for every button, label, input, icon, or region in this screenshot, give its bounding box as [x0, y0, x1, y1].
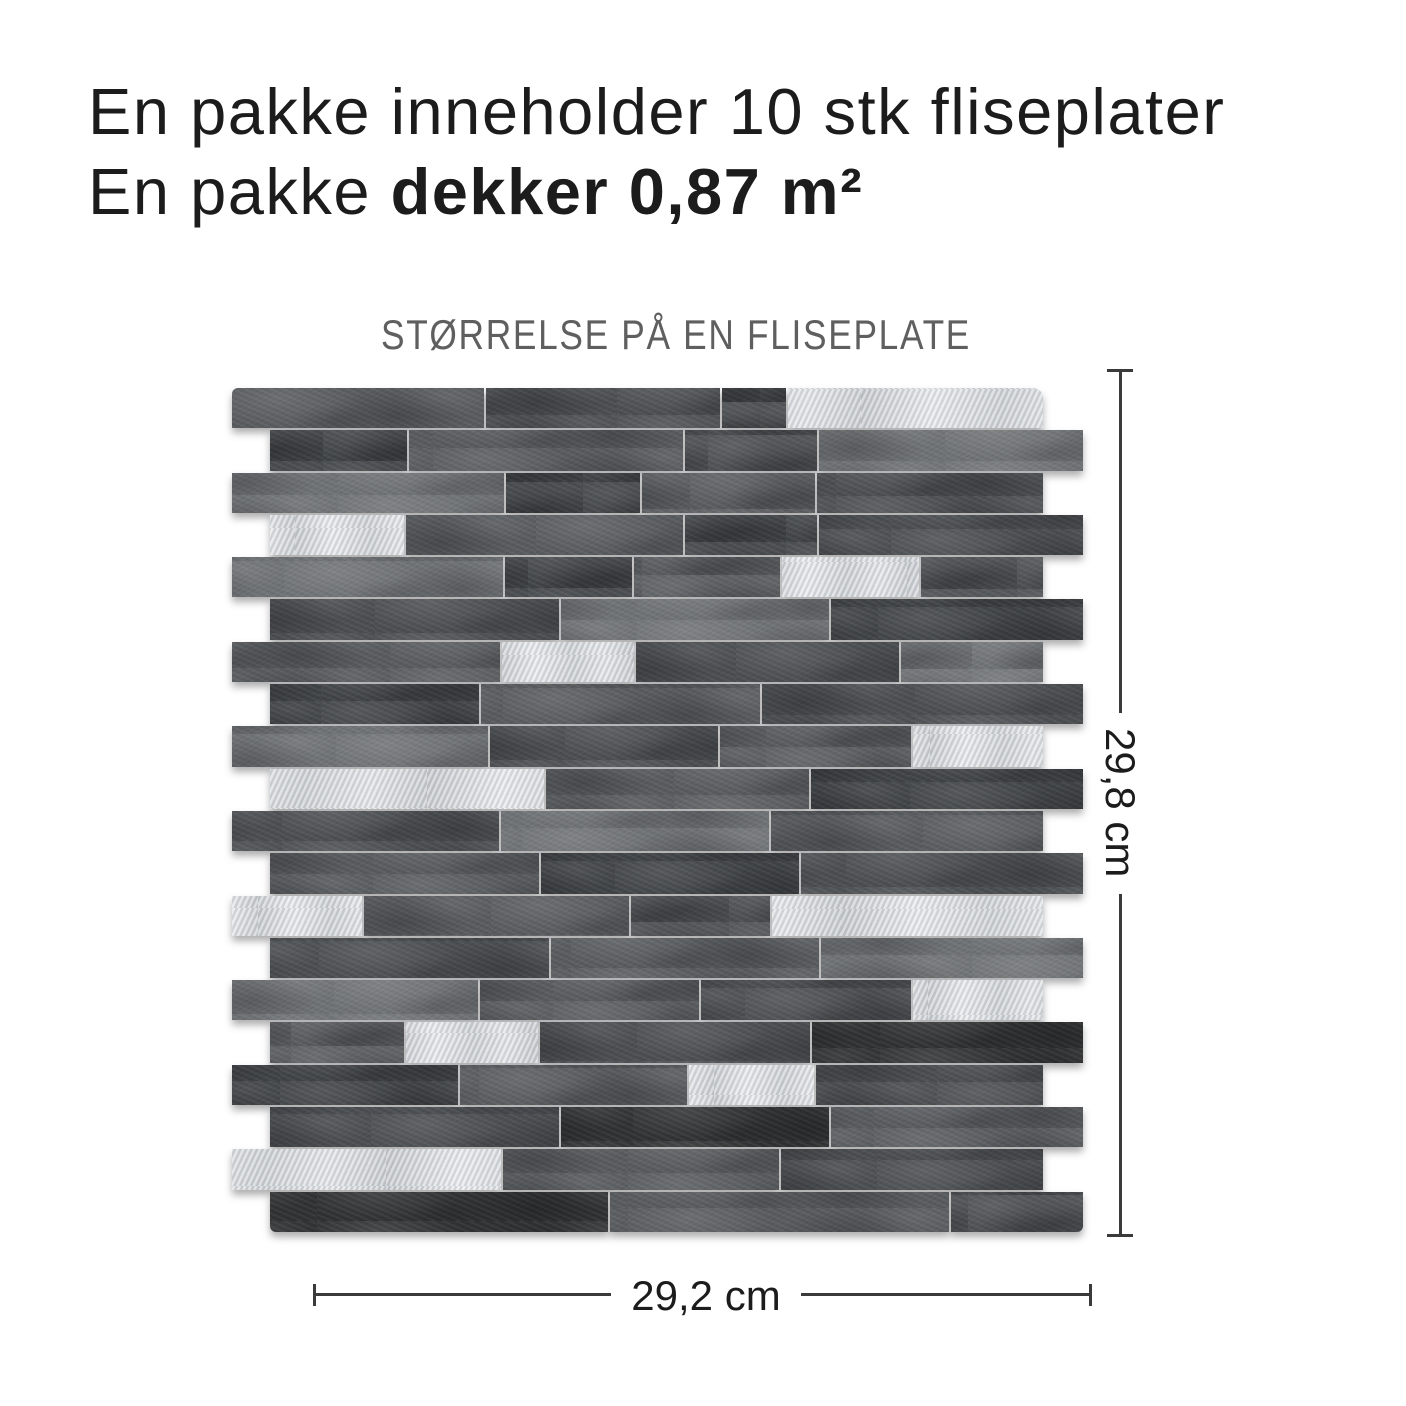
stone-brick [501, 811, 770, 851]
stone-brick [546, 769, 810, 809]
headline-line2-regular: En pakke [88, 155, 391, 228]
tile-row [232, 473, 1043, 513]
stone-brick [270, 684, 479, 724]
tile-row [232, 980, 1043, 1020]
stone-brick [364, 896, 629, 936]
metal-brick [270, 515, 404, 555]
stone-brick [561, 599, 830, 639]
stone-brick [551, 938, 820, 978]
tile-row [270, 769, 1083, 809]
stone-brick [270, 938, 549, 978]
stone-brick [781, 1149, 1043, 1189]
stone-brick [232, 473, 504, 513]
tile-row [270, 430, 1083, 470]
stone-brick [921, 557, 1043, 597]
stone-brick [480, 980, 698, 1020]
metal-brick [270, 769, 544, 809]
tile-row [270, 1022, 1083, 1062]
stone-brick [232, 1065, 458, 1105]
stone-brick [801, 853, 1083, 893]
stone-brick [460, 1065, 686, 1105]
stone-brick [406, 515, 683, 555]
tile-row [232, 642, 1043, 682]
stone-brick [811, 769, 1083, 809]
tile-row [270, 684, 1083, 724]
stone-brick [506, 473, 640, 513]
stone-brick [232, 388, 484, 428]
stone-brick [817, 473, 1043, 513]
headline: En pakke inneholder 10 stk fliseplater E… [88, 72, 1225, 232]
metal-brick [913, 726, 1043, 766]
stone-brick [490, 726, 718, 766]
stone-brick [819, 515, 1083, 555]
size-caption: STØRRELSE PÅ EN FLISEPLATE [381, 312, 971, 358]
width-dimension-right-tick [1089, 1284, 1092, 1306]
stone-brick [561, 1107, 830, 1147]
tile-row [270, 515, 1083, 555]
stone-brick [951, 1192, 1083, 1232]
metal-brick [232, 896, 362, 936]
stone-brick [701, 980, 911, 1020]
tile-row [270, 1192, 1083, 1232]
height-dimension-line-lower [1119, 894, 1122, 1236]
stone-brick [481, 684, 760, 724]
stone-brick [270, 1192, 608, 1232]
headline-line2: En pakke dekker 0,87 m² [88, 152, 1225, 232]
stone-brick [821, 938, 1083, 978]
metal-brick [232, 1149, 501, 1189]
stone-brick [831, 599, 1083, 639]
metal-brick [689, 1065, 814, 1105]
tile-row [270, 853, 1083, 893]
stone-brick [505, 557, 632, 597]
stone-brick [812, 1022, 1083, 1062]
stone-brick [232, 726, 488, 766]
tile-row [232, 1065, 1043, 1105]
metal-brick [913, 980, 1043, 1020]
stone-brick [816, 1065, 1043, 1105]
height-dimension-line-upper [1119, 369, 1122, 713]
product-infographic: En pakke inneholder 10 stk fliseplater E… [0, 0, 1406, 1406]
height-dimension-label: 29,8 cm [1092, 712, 1148, 894]
stone-brick [270, 1022, 404, 1062]
tile-row [232, 557, 1043, 597]
height-dimension-bottom-tick [1107, 1234, 1133, 1237]
stone-brick [819, 430, 1083, 470]
stone-brick [270, 430, 407, 470]
metal-brick [502, 642, 634, 682]
stone-brick [720, 726, 911, 766]
stone-brick [540, 1022, 810, 1062]
stone-brick [771, 811, 1043, 851]
stone-brick [503, 1149, 780, 1189]
width-dimension-line-left [313, 1293, 611, 1296]
stone-brick [232, 642, 500, 682]
stone-brick [685, 430, 817, 470]
stone-brick [762, 684, 1083, 724]
stone-brick [270, 1107, 559, 1147]
stone-brick [486, 388, 720, 428]
width-dimension-line-right [801, 1293, 1091, 1296]
stone-brick [232, 980, 478, 1020]
tile-row [232, 896, 1043, 936]
stone-brick [642, 473, 815, 513]
stone-brick [901, 642, 1043, 682]
metal-brick [406, 1022, 538, 1062]
metal-brick [772, 896, 1043, 936]
tile-row [232, 388, 1043, 428]
stone-brick [831, 1107, 1083, 1147]
tile-row [270, 1107, 1083, 1147]
stone-brick [685, 515, 817, 555]
stone-brick [631, 896, 770, 936]
metal-brick [782, 557, 920, 597]
tile-panel-photo [232, 388, 1083, 1232]
stone-brick [636, 642, 899, 682]
headline-line1: En pakke inneholder 10 stk fliseplater [88, 72, 1225, 152]
metal-brick [788, 388, 1043, 428]
tile-row [232, 811, 1043, 851]
stone-brick [722, 388, 786, 428]
stone-brick [232, 557, 503, 597]
stone-brick [270, 853, 539, 893]
stone-brick [409, 430, 683, 470]
tile-row [270, 938, 1083, 978]
tile-row [232, 1149, 1043, 1189]
stone-brick [541, 853, 800, 893]
stone-brick [634, 557, 780, 597]
tile-row [270, 599, 1083, 639]
headline-line2-bold: dekker 0,87 m² [391, 155, 864, 228]
stone-brick [610, 1192, 948, 1232]
tile-row [232, 726, 1043, 766]
width-dimension-label: 29,2 cm [611, 1274, 801, 1318]
stone-brick [270, 599, 559, 639]
stone-brick [232, 811, 499, 851]
